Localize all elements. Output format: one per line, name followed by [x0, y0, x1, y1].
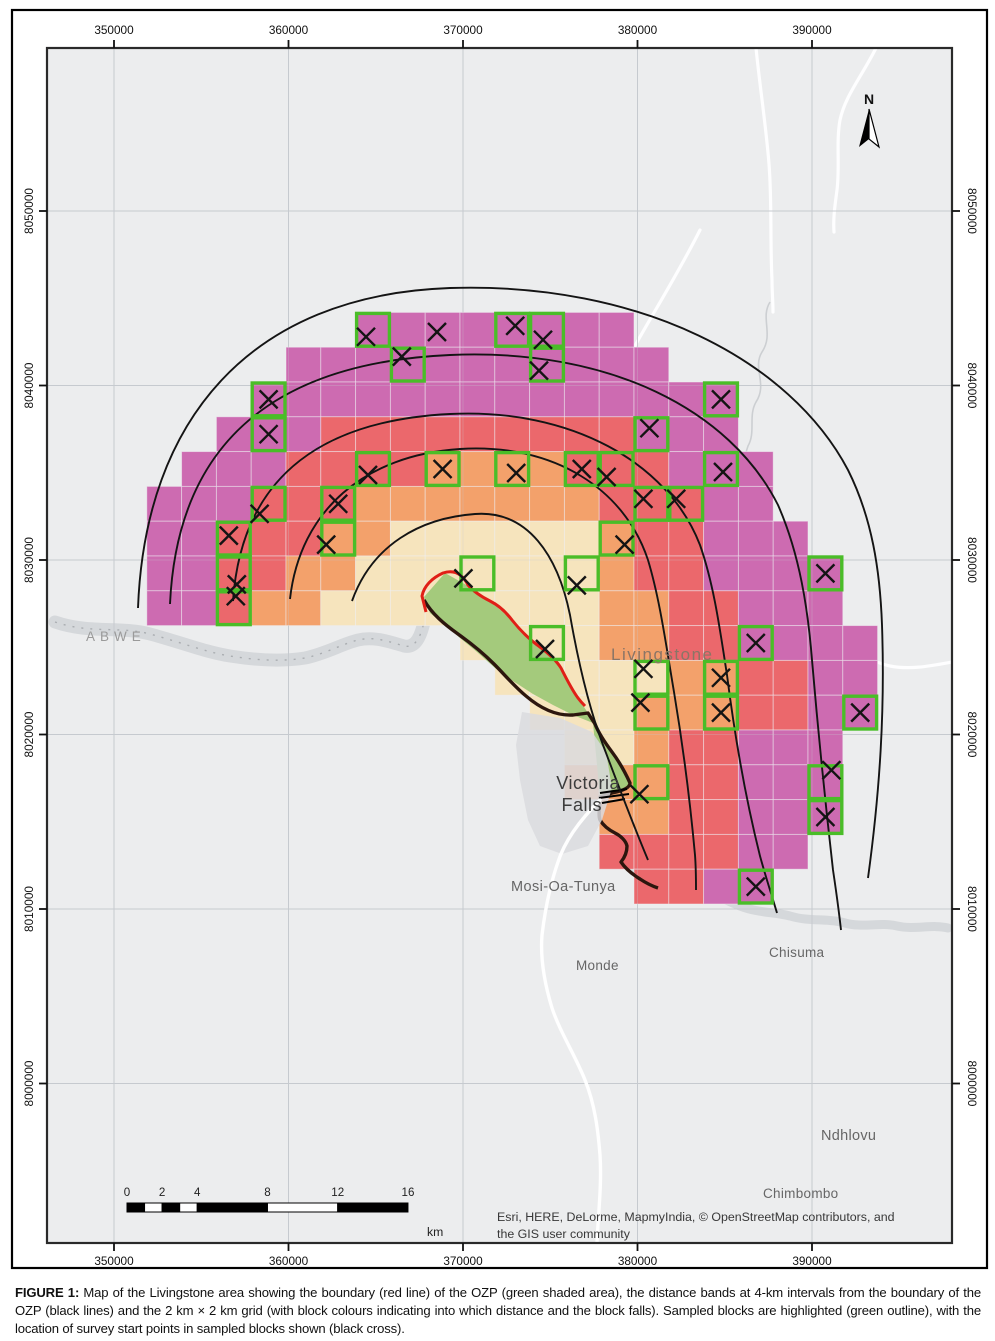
map-block — [564, 556, 599, 591]
map-block — [286, 486, 321, 521]
figure-caption: FIGURE 1: Map of the Livingstone area sh… — [15, 1284, 981, 1338]
map-block — [530, 347, 565, 382]
axis-label-easting: 360000 — [269, 1254, 309, 1268]
map-block — [738, 591, 773, 626]
map-label-monde: Monde — [576, 958, 619, 973]
map-block — [425, 417, 460, 452]
scale-tick-label: 12 — [331, 1186, 344, 1199]
map-block — [216, 486, 251, 521]
map-block — [704, 869, 739, 904]
map-block — [773, 626, 808, 661]
axis-label-northing: 8040000 — [22, 362, 36, 408]
map-block — [495, 417, 530, 452]
map-block — [251, 556, 286, 591]
map-block — [808, 591, 843, 626]
map-block — [564, 486, 599, 521]
axis-label-northing: 8020000 — [22, 711, 36, 757]
map-block — [773, 695, 808, 730]
map-block — [147, 486, 182, 521]
axis-label-northing: 8000000 — [22, 1060, 36, 1106]
map-block — [773, 765, 808, 800]
axis-label-northing: 8040000 — [965, 363, 979, 409]
map-label-chimbombo: Chimbombo — [763, 1186, 838, 1201]
map-block — [251, 591, 286, 626]
map-block — [564, 382, 599, 417]
map-block — [704, 521, 739, 556]
map-block — [808, 730, 843, 765]
map-block — [182, 556, 217, 591]
map-block — [460, 521, 495, 556]
figure-page: ABWELivingstoneVictoriaFallsMosi-Oa-Tuny… — [0, 0, 995, 1341]
map-block — [634, 800, 669, 835]
map-block — [390, 347, 425, 382]
map-block — [634, 452, 669, 487]
map-block — [356, 556, 391, 591]
map-block — [704, 730, 739, 765]
map-block — [704, 486, 739, 521]
scale-unit: km — [427, 1225, 443, 1239]
map-block — [321, 556, 356, 591]
map-block — [530, 556, 565, 591]
map-block — [286, 417, 321, 452]
map-block — [738, 730, 773, 765]
scale-tick-label: 2 — [159, 1186, 165, 1199]
map-block — [530, 382, 565, 417]
axis-label-easting: 360000 — [269, 23, 309, 37]
map-block — [634, 382, 669, 417]
map-label-chisuma: Chisuma — [769, 945, 825, 960]
map-block — [773, 730, 808, 765]
map-block — [704, 800, 739, 835]
map-block — [599, 312, 634, 347]
map-block — [599, 452, 634, 487]
map-block — [599, 556, 634, 591]
scale-bar-segment — [145, 1203, 163, 1212]
map-block — [669, 591, 704, 626]
map-block — [808, 695, 843, 730]
scale-bar-segment — [162, 1203, 180, 1212]
attribution-line2: the GIS user community — [497, 1227, 631, 1241]
axis-label-easting: 390000 — [792, 1254, 832, 1268]
axis-label-easting: 350000 — [94, 23, 134, 37]
map-label-victoria: Victoria — [556, 773, 620, 793]
caption-label: FIGURE 1: — [15, 1285, 79, 1300]
map-label-mosi-oa-tunya: Mosi-Oa-Tunya — [511, 879, 616, 895]
map-block — [599, 591, 634, 626]
map-block — [669, 695, 704, 730]
map-block — [773, 660, 808, 695]
map-block — [599, 521, 634, 556]
map-block — [669, 800, 704, 835]
map-block — [147, 591, 182, 626]
map-block — [738, 521, 773, 556]
map-block — [321, 417, 356, 452]
map-block — [356, 591, 391, 626]
map-block — [669, 556, 704, 591]
map-label-livingstone: Livingstone — [611, 645, 714, 664]
map-block — [425, 521, 460, 556]
map-block — [843, 660, 878, 695]
scale-bar-segment — [267, 1203, 337, 1212]
map-block — [669, 869, 704, 904]
map-block — [425, 382, 460, 417]
map-block — [599, 660, 634, 695]
map-block — [704, 591, 739, 626]
map-block — [460, 452, 495, 487]
map-block — [321, 382, 356, 417]
scale-bar-segment — [197, 1203, 267, 1212]
map-block — [390, 312, 425, 347]
map-block — [251, 452, 286, 487]
axis-label-easting: 390000 — [792, 23, 832, 37]
map-block — [147, 556, 182, 591]
map-block — [182, 521, 217, 556]
map-block — [460, 486, 495, 521]
map-block — [321, 452, 356, 487]
map-block — [390, 417, 425, 452]
map-block — [564, 347, 599, 382]
map-block — [460, 312, 495, 347]
map-block — [286, 347, 321, 382]
map-block — [634, 417, 669, 452]
map-block — [704, 765, 739, 800]
map-block — [495, 382, 530, 417]
map-block — [286, 382, 321, 417]
scale-tick-label: 8 — [264, 1186, 270, 1199]
axis-label-easting: 370000 — [443, 1254, 483, 1268]
map-block — [530, 591, 565, 626]
map-block — [808, 626, 843, 661]
axis-label-easting: 380000 — [618, 1254, 658, 1268]
map-block — [669, 834, 704, 869]
map-block — [738, 695, 773, 730]
map-block — [182, 452, 217, 487]
map-block — [773, 834, 808, 869]
map-block — [599, 695, 634, 730]
axis-label-easting: 380000 — [618, 23, 658, 37]
map-block — [321, 521, 356, 556]
axis-label-northing: 8020000 — [965, 712, 979, 758]
map-label-ndhlovu: Ndhlovu — [821, 1128, 876, 1144]
map-block — [738, 800, 773, 835]
map-block — [460, 417, 495, 452]
axis-label-northing: 8010000 — [965, 886, 979, 932]
map-block — [599, 486, 634, 521]
map-block — [495, 556, 530, 591]
map-block — [495, 521, 530, 556]
scale-bar-segment — [338, 1203, 408, 1212]
map-block — [390, 486, 425, 521]
map-block — [669, 730, 704, 765]
map-block — [564, 591, 599, 626]
map-block — [182, 486, 217, 521]
scale-bar-segment — [127, 1203, 145, 1212]
map-label-falls: Falls — [561, 795, 602, 815]
map-block — [738, 660, 773, 695]
map-block — [634, 591, 669, 626]
map-block — [216, 452, 251, 487]
scale-tick-label: 4 — [194, 1186, 201, 1199]
scale-tick-label: 16 — [402, 1186, 415, 1199]
axis-label-northing: 8000000 — [965, 1061, 979, 1107]
north-label: N — [864, 91, 874, 107]
map-block — [530, 312, 565, 347]
axis-label-northing: 8030000 — [22, 537, 36, 583]
map-block — [599, 834, 634, 869]
map-block — [669, 417, 704, 452]
map-block — [356, 382, 391, 417]
scale-bar-segment — [180, 1203, 198, 1212]
map-block — [321, 591, 356, 626]
map-block — [634, 347, 669, 382]
map-block — [738, 486, 773, 521]
axis-label-northing: 8050000 — [965, 188, 979, 234]
map-block — [773, 591, 808, 626]
axis-label-northing: 8030000 — [965, 537, 979, 583]
map-block — [286, 521, 321, 556]
map-label-abwe: ABWE — [86, 629, 146, 644]
map-block — [599, 417, 634, 452]
map-block — [564, 626, 599, 661]
map-block — [669, 452, 704, 487]
map-block — [738, 556, 773, 591]
map-block — [390, 382, 425, 417]
map-block — [390, 556, 425, 591]
axis-label-easting: 370000 — [443, 23, 483, 37]
map-block — [530, 486, 565, 521]
map-block — [704, 834, 739, 869]
axis-label-northing: 8010000 — [22, 886, 36, 932]
map-block — [669, 382, 704, 417]
map-block — [182, 591, 217, 626]
map-block — [425, 312, 460, 347]
caption-text: Map of the Livingstone area showing the … — [15, 1285, 981, 1336]
map-block — [460, 347, 495, 382]
map-block — [495, 347, 530, 382]
map-block — [356, 486, 391, 521]
map-block — [460, 382, 495, 417]
map-block — [425, 347, 460, 382]
attribution-line1: Esri, HERE, DeLorme, MapmyIndia, © OpenS… — [497, 1210, 895, 1224]
map-block — [390, 591, 425, 626]
map-block — [599, 382, 634, 417]
map-block — [390, 452, 425, 487]
axis-label-easting: 350000 — [94, 1254, 134, 1268]
map-block — [843, 626, 878, 661]
map-block — [634, 730, 669, 765]
map-block — [773, 800, 808, 835]
map-block — [564, 312, 599, 347]
map-block — [564, 521, 599, 556]
livingstone-map: ABWELivingstoneVictoriaFallsMosi-Oa-Tuny… — [0, 0, 995, 1341]
scale-tick-label: 0 — [124, 1186, 130, 1199]
map-block — [251, 521, 286, 556]
axis-label-northing: 8050000 — [22, 188, 36, 234]
